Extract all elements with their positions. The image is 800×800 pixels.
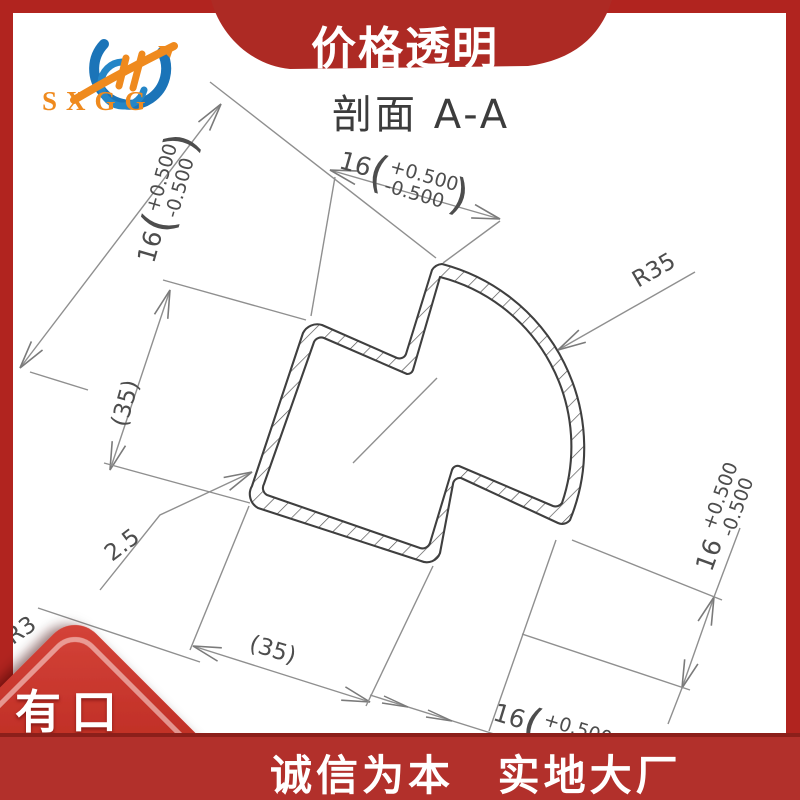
chevron-arrow xyxy=(426,710,452,721)
top-banner-label: 价格透明 xyxy=(240,12,570,77)
frame-border-right xyxy=(786,0,800,740)
ext-line xyxy=(311,177,335,316)
tube-wall-section xyxy=(250,264,584,562)
dim-line-right16 xyxy=(682,597,714,688)
dim-right16: 16 +0.500 -0.500 xyxy=(684,459,761,577)
ext-line xyxy=(443,221,500,263)
dim-top16: 16 ( +0.500 -0.500 ) xyxy=(333,137,475,223)
bottom-banner-label: 诚信为本 实地大厂 xyxy=(270,742,682,800)
ext-line xyxy=(366,566,433,706)
dim-value: R35 xyxy=(628,248,680,293)
chevron-arrow xyxy=(382,696,408,707)
radius-reference-line xyxy=(353,378,437,463)
dim-line-right16 xyxy=(668,688,682,724)
product-graphic: 16 ( +0.500 -0.500 ) 16 ( +0.500 -0.500 … xyxy=(0,0,800,800)
leader-r35 xyxy=(558,272,695,350)
section-title: 剖面 A-A xyxy=(332,82,510,140)
dim-r35: R35 xyxy=(628,248,680,293)
logo-wordmark: SXGG xyxy=(42,86,155,117)
dim-value: 16 xyxy=(690,535,728,575)
ext-line xyxy=(522,634,690,690)
